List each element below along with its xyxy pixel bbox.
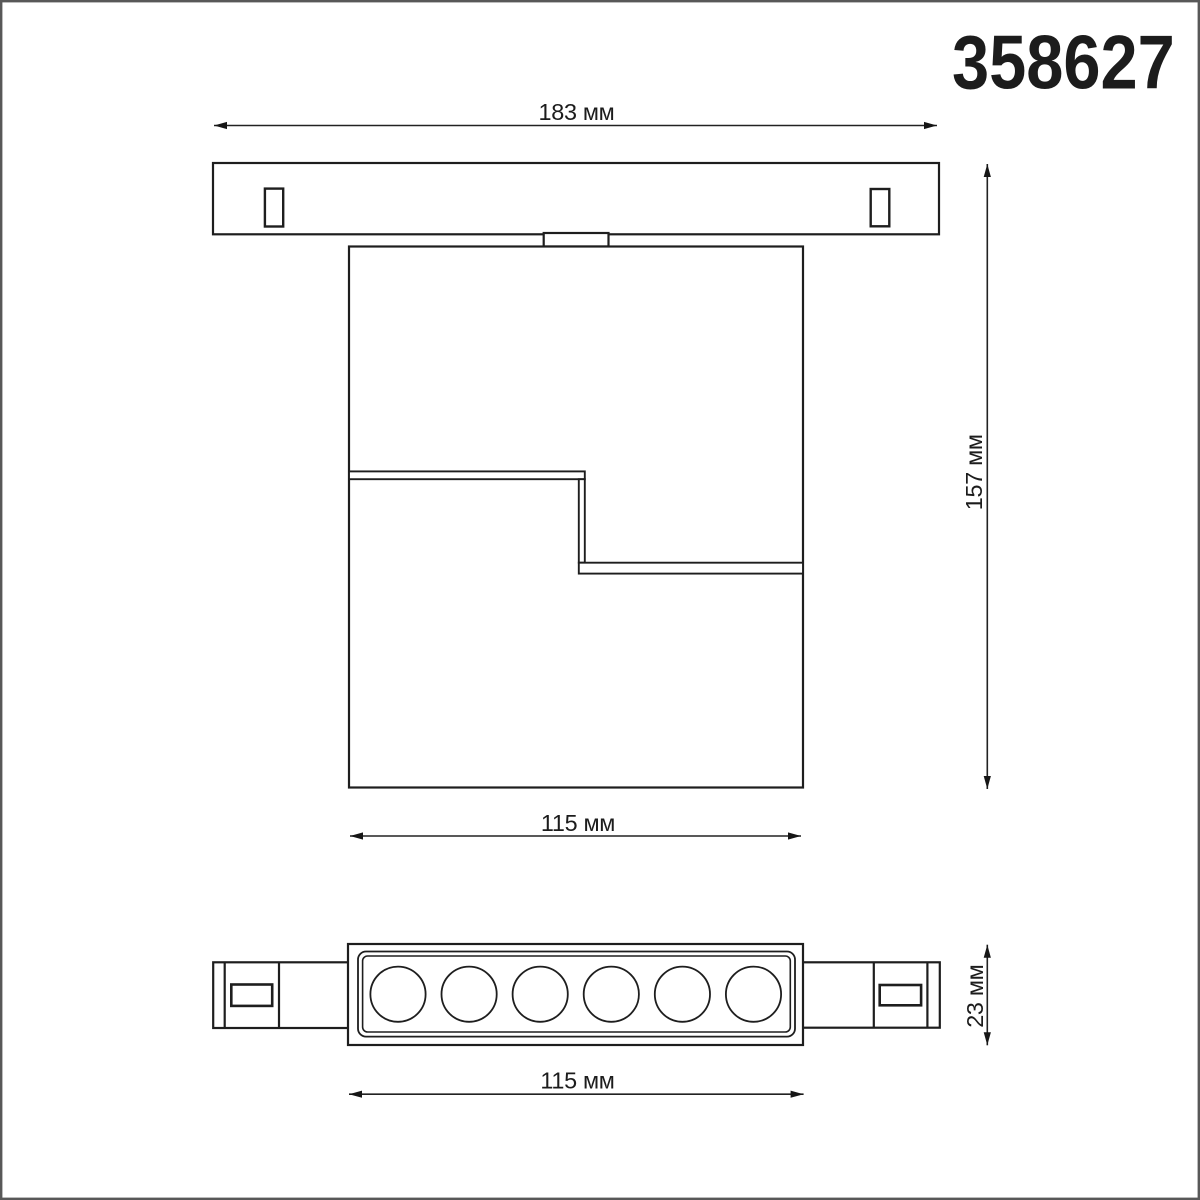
svg-text:358627: 358627 xyxy=(952,21,1175,106)
svg-text:183 мм: 183 мм xyxy=(539,99,615,125)
svg-text:115 мм: 115 мм xyxy=(541,810,615,836)
svg-text:23 мм: 23 мм xyxy=(962,965,988,1028)
svg-text:157 мм: 157 мм xyxy=(961,434,987,510)
svg-text:115 мм: 115 мм xyxy=(540,1068,614,1094)
